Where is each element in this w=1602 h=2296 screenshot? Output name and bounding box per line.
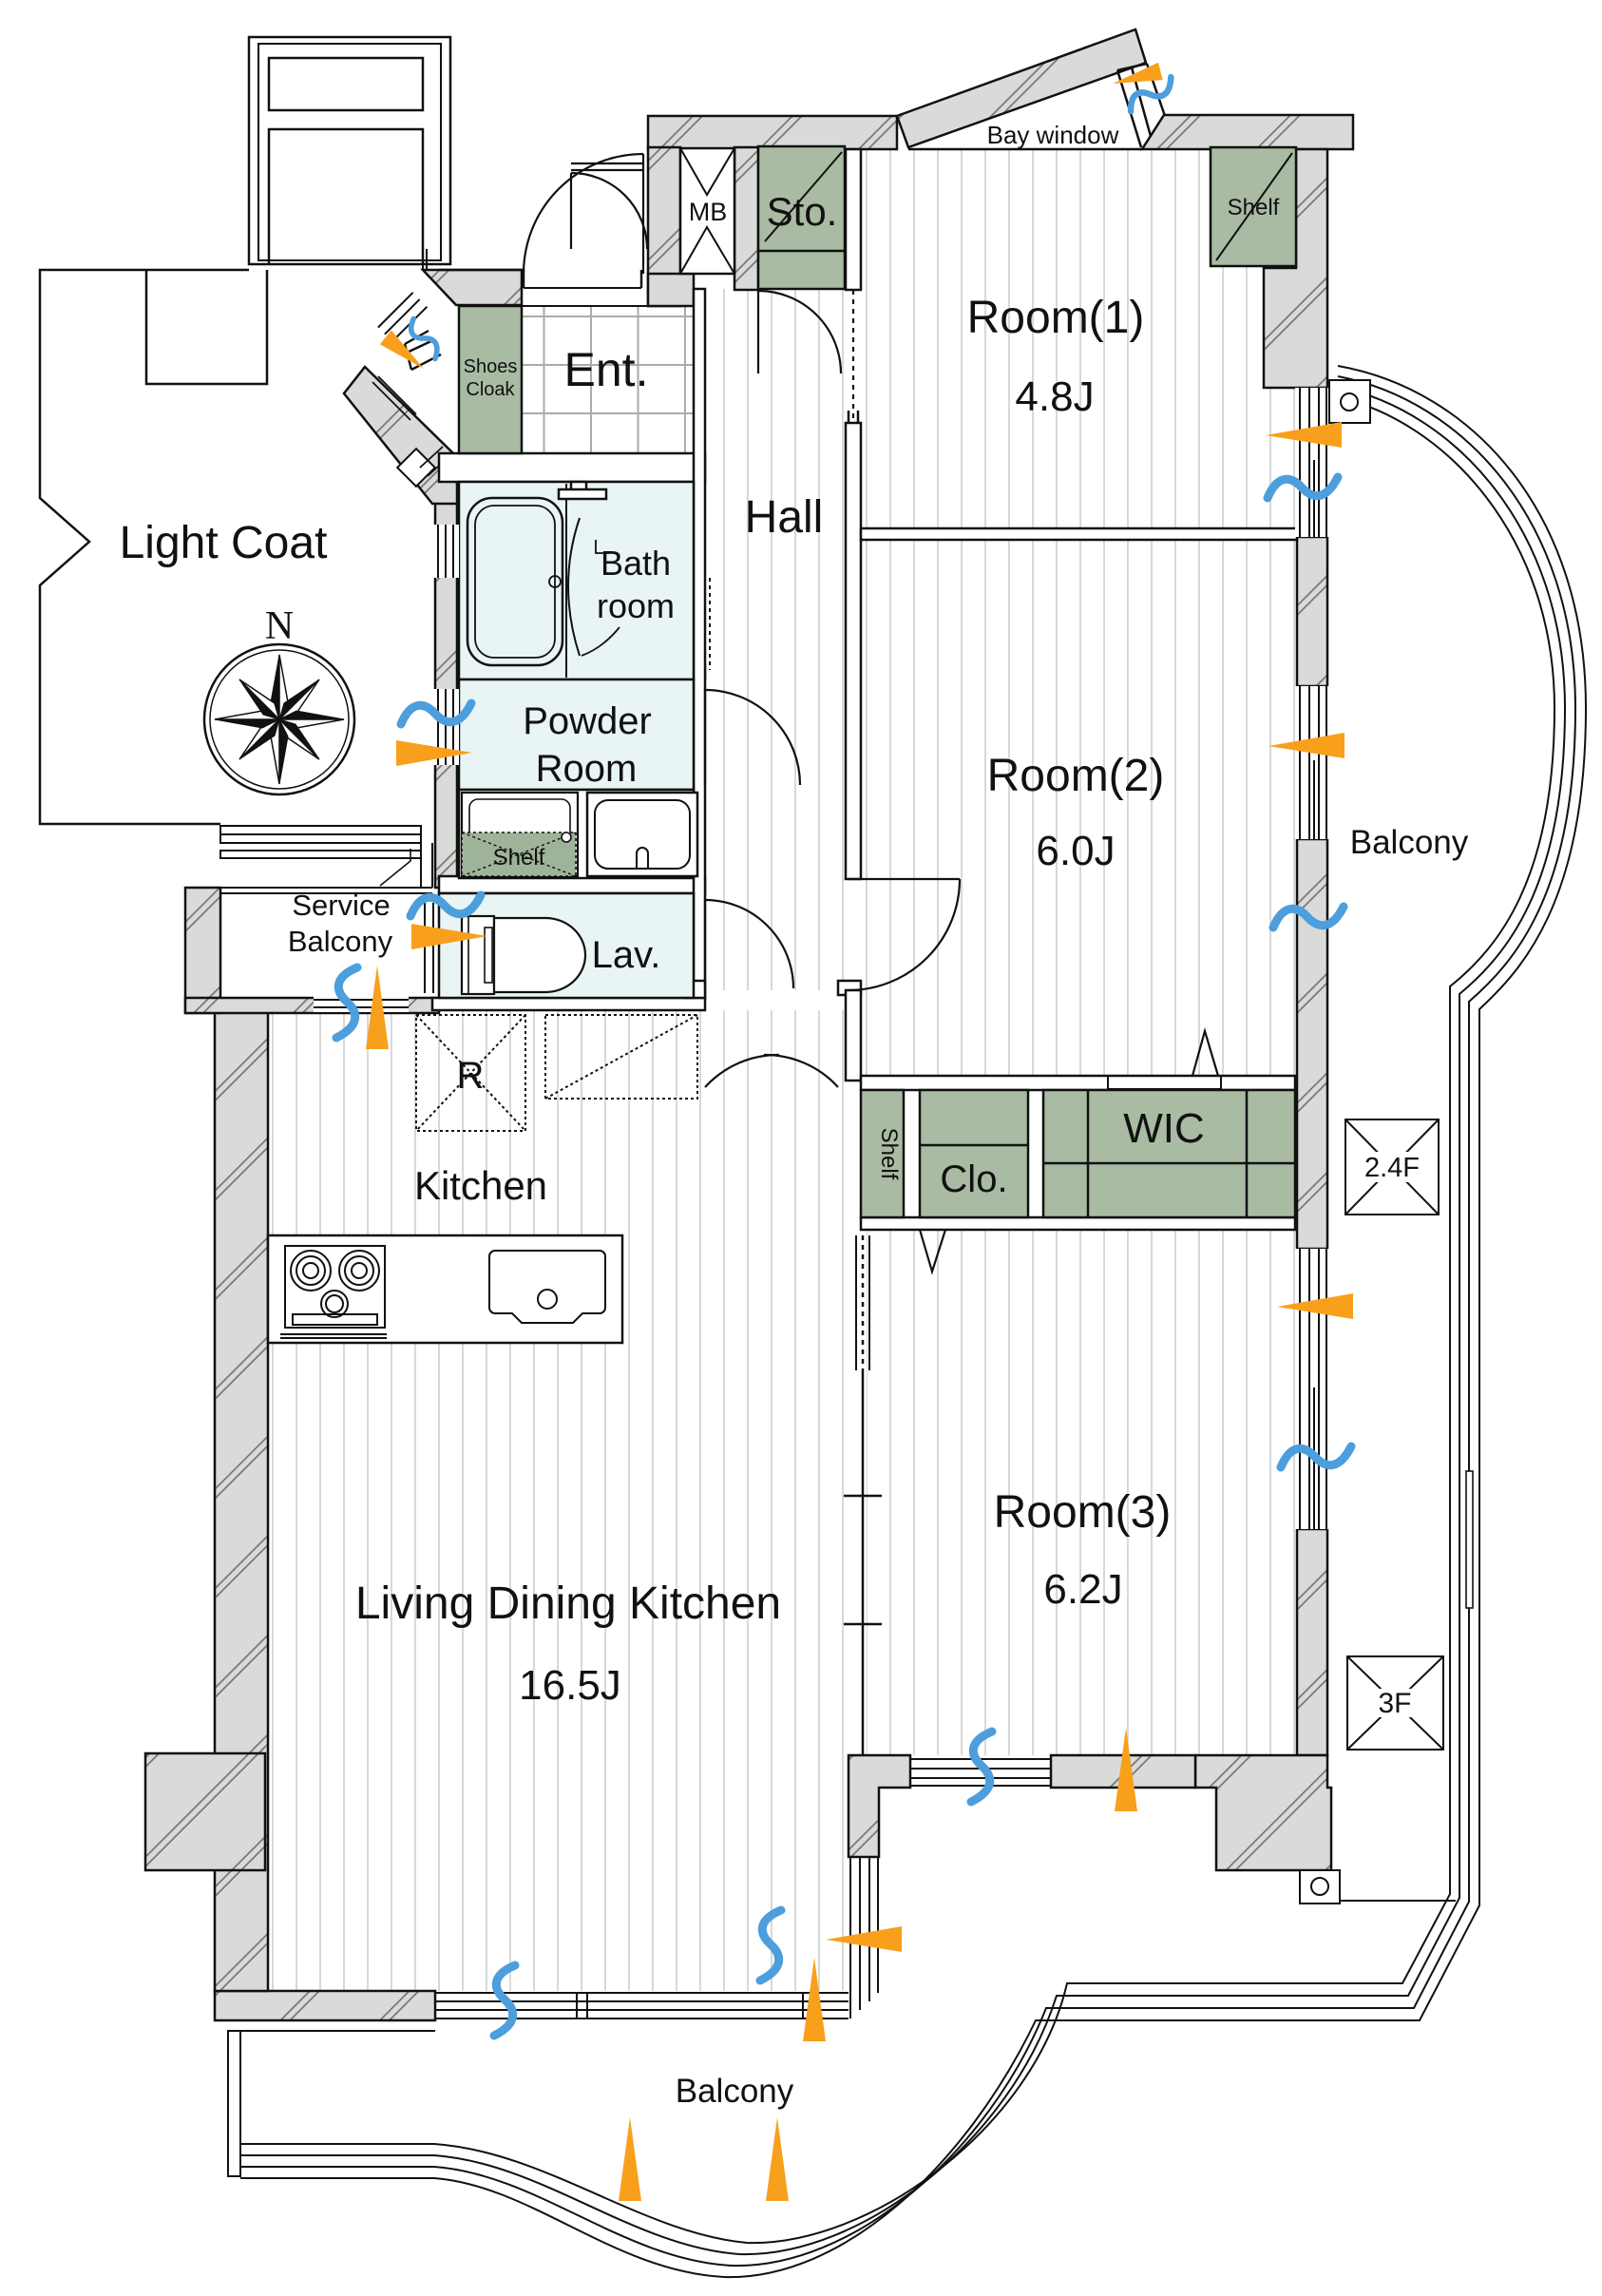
svg-text:Kitchen: Kitchen: [414, 1163, 547, 1208]
svg-text:R: R: [457, 1055, 485, 1097]
svg-text:Cloak: Cloak: [466, 379, 515, 400]
svg-text:6.0J: 6.0J: [1036, 828, 1115, 874]
svg-text:WIC: WIC: [1123, 1105, 1205, 1152]
svg-text:6.2J: 6.2J: [1043, 1566, 1122, 1613]
svg-text:Balcony: Balcony: [676, 2073, 794, 2110]
svg-text:2.4F: 2.4F: [1364, 1153, 1420, 1183]
svg-text:Shelf: Shelf: [493, 845, 545, 871]
svg-text:Living Dining Kitchen: Living Dining Kitchen: [355, 1578, 781, 1629]
svg-text:Powder: Powder: [523, 700, 652, 742]
svg-text:Shoes: Shoes: [464, 356, 518, 377]
svg-text:Shelf: Shelf: [876, 1128, 902, 1180]
svg-text:Ent.: Ent.: [564, 343, 649, 396]
svg-text:Room(2): Room(2): [987, 751, 1165, 801]
svg-text:Room: Room: [536, 748, 638, 790]
svg-text:Light Coat: Light Coat: [120, 518, 328, 568]
svg-text:Room(3): Room(3): [994, 1487, 1172, 1538]
svg-text:Service: Service: [292, 889, 390, 922]
svg-text:Bath: Bath: [601, 544, 671, 583]
svg-text:3F: 3F: [1378, 1688, 1411, 1719]
svg-text:room: room: [597, 586, 675, 625]
svg-text:4.8J: 4.8J: [1015, 373, 1094, 420]
svg-text:N: N: [265, 604, 294, 648]
svg-text:Balcony: Balcony: [288, 925, 393, 958]
svg-text:Lav.: Lav.: [592, 934, 661, 976]
svg-text:Balcony: Balcony: [1350, 824, 1469, 861]
svg-text:Shelf: Shelf: [1228, 195, 1280, 220]
svg-text:Room(1): Room(1): [967, 293, 1145, 343]
svg-text:Sto.: Sto.: [767, 189, 838, 234]
svg-text:MB: MB: [689, 198, 728, 226]
svg-text:Hall: Hall: [745, 492, 824, 543]
svg-text:Bay window: Bay window: [987, 121, 1119, 149]
svg-text:16.5J: 16.5J: [519, 1662, 621, 1709]
svg-text:Clo.: Clo.: [940, 1158, 1007, 1200]
